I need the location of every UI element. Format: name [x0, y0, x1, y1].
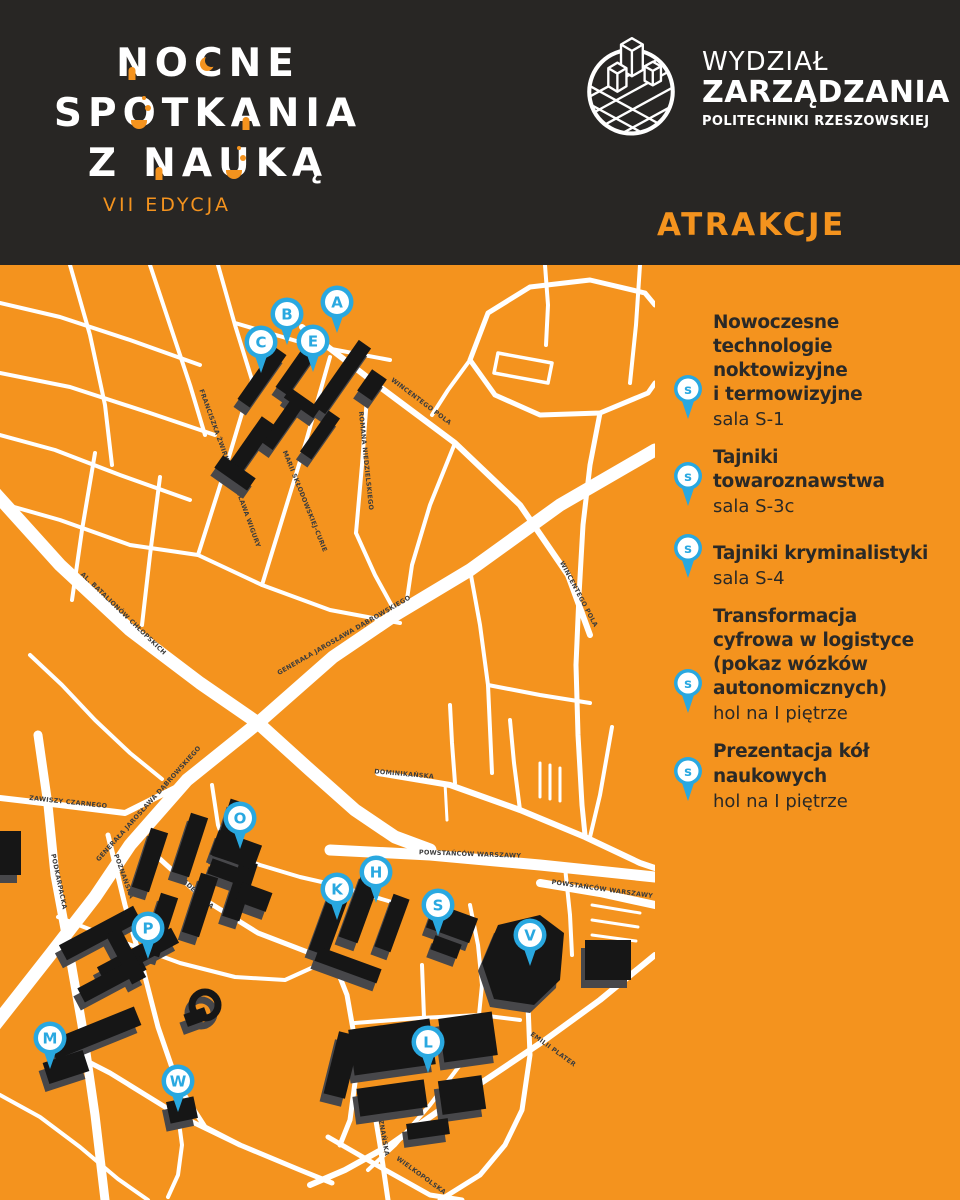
attraction-title: Prezentacja kół naukowych: [713, 740, 869, 788]
attraction-item: sTransformacja cyfrowa w logistyce (poka…: [671, 605, 960, 724]
faculty-name: WYDZIAŁ ZARZĄDZANIA POLITECHNIKI RZESZOW…: [702, 49, 950, 129]
logo-letter: Ą: [292, 144, 322, 185]
logo-letter: Z: [88, 144, 116, 185]
logo-letter: N: [267, 94, 300, 135]
logo-letter: N: [116, 44, 149, 85]
svg-text:s: s: [684, 470, 692, 485]
attraction-title: Transformacja cyfrowa w logistyce (pokaz…: [713, 605, 914, 701]
attractions-panel: sNowoczesne technologie noktowizyjne i t…: [655, 265, 960, 1200]
event-map-poster: NOCNESPOTKANIAZNAUKĄ VII EDYCJA: [0, 0, 960, 1200]
logo-letter: O: [155, 44, 188, 85]
logo-letter: N: [229, 44, 262, 85]
svg-text:L: L: [423, 1034, 433, 1052]
attraction-item: sPrezentacja kół naukowych hol na I pięt…: [671, 740, 960, 811]
logo-letter: I: [305, 94, 320, 135]
svg-text:P: P: [143, 920, 154, 938]
logo-letter: T: [162, 94, 189, 135]
moon-icon: [200, 57, 214, 71]
attraction-location: sala S-1: [713, 409, 960, 430]
faculty-name-line1: WYDZIAŁ: [702, 49, 950, 76]
logo-letter: S: [54, 94, 82, 135]
attraction-title: Nowoczesne technologie noktowizyjne i te…: [713, 311, 862, 407]
header: NOCNESPOTKANIAZNAUKĄ VII EDYCJA: [0, 0, 960, 265]
attraction-location: sala S-4: [713, 568, 960, 589]
flask-icon: [131, 120, 147, 129]
svg-text:s: s: [684, 383, 692, 398]
location-pin-icon: s: [671, 756, 705, 804]
location-pin-icon: s: [671, 461, 705, 509]
location-pin-icon: s: [671, 668, 705, 716]
svg-text:s: s: [684, 677, 692, 692]
faculty-name-line2: ZARZĄDZANIA: [702, 76, 950, 111]
attraction-title: Tajniki kryminalistyki: [713, 542, 928, 566]
logo-letter: A: [326, 94, 356, 135]
logo-letter: K: [256, 144, 286, 185]
logo-letter: K: [194, 94, 224, 135]
faculty-name-line3: POLITECHNIKI RZESZOWSKIEJ: [702, 114, 950, 129]
street: [445, 783, 447, 820]
svg-text:C: C: [255, 334, 266, 352]
door-icon: [156, 167, 163, 180]
logo-line: NOCNE: [55, 44, 355, 85]
faculty-logo: WYDZIAŁ ZARZĄDZANIA POLITECHNIKI RZESZOW…: [572, 28, 950, 150]
logo-letter: U: [218, 144, 250, 185]
svg-text:K: K: [331, 881, 344, 899]
event-logo: NOCNESPOTKANIAZNAUKĄ VII EDYCJA: [55, 44, 355, 216]
attraction-title: Tajniki towaroznawstwa: [713, 446, 885, 494]
logo-letter: A: [231, 94, 261, 135]
svg-text:B: B: [281, 306, 292, 324]
building: [0, 831, 21, 875]
svg-text:O: O: [234, 810, 247, 828]
logo-letter: O: [123, 94, 156, 135]
attraction-location: sala S-3c: [713, 496, 960, 517]
flask-icon: [226, 170, 242, 179]
location-pin-icon: s: [671, 533, 705, 581]
street: [422, 965, 424, 1017]
svg-text:V: V: [524, 927, 536, 945]
building: [438, 1075, 486, 1115]
logo-letter: E: [267, 44, 294, 85]
attraction-item: sNowoczesne technologie noktowizyjne i t…: [671, 311, 960, 430]
svg-text:S: S: [433, 897, 444, 915]
door-icon: [129, 67, 136, 80]
attraction-item: sTajniki towaroznawstwa sala S-3c: [671, 446, 960, 517]
building: [438, 1011, 498, 1062]
svg-text:H: H: [370, 864, 383, 882]
attraction-item: sTajniki kryminalistyki sala S-4: [671, 533, 960, 589]
svg-text:M: M: [43, 1030, 58, 1048]
logo-line: SPOTKANIA: [55, 94, 355, 135]
attraction-location: hol na I piętrze: [713, 791, 960, 812]
logo-letter: N: [143, 144, 176, 185]
logo-line: ZNAUKĄ: [55, 144, 355, 185]
attractions-title: ATRAKCJE: [657, 207, 846, 243]
svg-text:W: W: [170, 1073, 187, 1091]
building: [585, 940, 631, 980]
svg-text:s: s: [684, 542, 692, 557]
campus-map: WINCENTEGO POLAWINCENTEGO POLAROMANA NIE…: [0, 265, 655, 1200]
svg-text:A: A: [331, 294, 343, 312]
svg-text:E: E: [308, 333, 318, 351]
logo-letter: A: [182, 144, 212, 185]
door-icon: [242, 117, 249, 130]
event-edition: VII EDYCJA: [55, 194, 355, 216]
event-logo-text: NOCNESPOTKANIAZNAUKĄ: [55, 44, 355, 185]
location-pin-icon: s: [671, 374, 705, 422]
svg-text:s: s: [684, 765, 692, 780]
attraction-location: hol na I piętrze: [713, 703, 960, 724]
logo-letter: P: [88, 94, 117, 135]
logo-letter: C: [194, 44, 223, 85]
faculty-emblem-icon: [572, 28, 690, 150]
